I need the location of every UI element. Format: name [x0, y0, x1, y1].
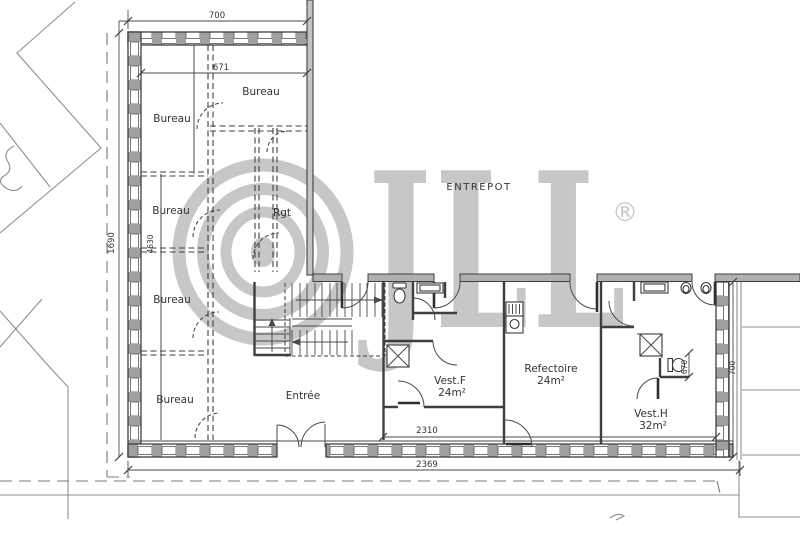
- entrepot-west-wall: [307, 0, 313, 275]
- room-label-bureau-bottom: Bureau: [156, 394, 194, 406]
- room-label-rgt: Rgt: [273, 207, 291, 219]
- urinal-icon-2: [701, 283, 711, 294]
- south-wall-right: [326, 444, 733, 457]
- toilet-bowl-icon: [394, 289, 405, 303]
- road-edge: [0, 311, 68, 519]
- strip-wall-seg-4: [597, 274, 692, 282]
- urinal-icon-1: [681, 283, 691, 294]
- floor-plan-page: JLL ®: [0, 0, 800, 537]
- room-area-vest-f: 24m²: [438, 387, 466, 399]
- strip-wall-seg-2: [368, 274, 434, 282]
- road-line: [0, 299, 42, 347]
- dim-left-inner-height: 4630: [146, 234, 155, 253]
- room-label-vest-h: Vest.H: [634, 408, 668, 420]
- south-wall-left: [128, 444, 277, 457]
- dim-top-width: 700: [209, 11, 225, 21]
- room-area-vest-h: 32m²: [639, 420, 667, 432]
- southeast-context-corner: [739, 460, 800, 517]
- room-label-entree: Entrée: [286, 390, 320, 402]
- room-label-entrepot: ENTREPOT: [446, 182, 511, 193]
- sink-basin-icon-2: [644, 284, 665, 291]
- strip-wall-seg-5: [715, 274, 800, 282]
- dim-top-inner-width: 671: [213, 63, 229, 73]
- west-wall: [128, 32, 141, 457]
- room-label-bureau-lower-middle: Bureau: [153, 294, 191, 306]
- strip-wall-seg-1: [313, 274, 342, 282]
- landscape-squiggle: [0, 146, 22, 191]
- toilet-tank-icon: [393, 283, 406, 288]
- floor-plan-canvas: JLL ®: [0, 0, 800, 537]
- small-squiggle: [610, 514, 624, 520]
- room-label-bureau-middle: Bureau: [152, 205, 190, 217]
- shower-icon-2: [640, 334, 662, 356]
- dim-right-height: 700: [728, 361, 737, 376]
- kitchen-unit-icon: [506, 302, 523, 333]
- sink-basin-icon: [420, 285, 440, 291]
- room-label-vest-f: Vest.F: [434, 375, 466, 387]
- south-boundary-end: [717, 481, 720, 493]
- north-wall: [128, 32, 310, 45]
- dim-left-height: 1690: [107, 232, 117, 254]
- room-label-bureau-top-center: Bureau: [242, 86, 280, 98]
- dim-overall-width: 2369: [416, 460, 438, 470]
- shower-icon: [387, 345, 409, 367]
- dim-strip-inner-width: 2310: [416, 426, 438, 436]
- room-label-refectoire: Refectoire: [524, 363, 577, 375]
- registered-trademark-icon: ®: [612, 198, 638, 228]
- dim-wc-width: 670: [680, 360, 689, 375]
- adjacent-building-line: [0, 123, 50, 187]
- room-area-refectoire: 24m²: [537, 375, 565, 387]
- adjacent-building-outline: [0, 2, 101, 233]
- strip-wall-seg-3: [460, 274, 570, 282]
- room-label-bureau-top-left: Bureau: [153, 113, 191, 125]
